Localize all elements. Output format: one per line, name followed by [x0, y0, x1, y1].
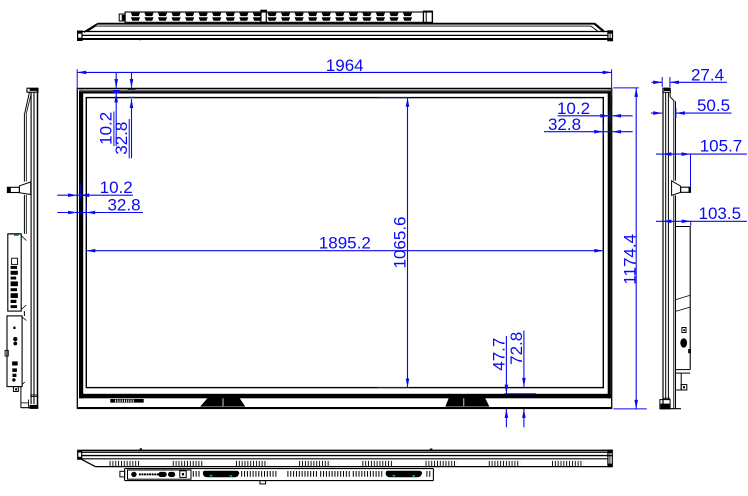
svg-text:32.8: 32.8	[107, 196, 140, 215]
svg-text:47.7: 47.7	[489, 338, 508, 371]
svg-text:72.8: 72.8	[507, 332, 526, 365]
svg-text:32.8: 32.8	[548, 115, 581, 134]
svg-text:27.4: 27.4	[691, 65, 724, 84]
svg-text:1065.6: 1065.6	[390, 217, 409, 269]
svg-text:1964: 1964	[326, 56, 364, 75]
svg-text:1174.4: 1174.4	[621, 234, 640, 285]
svg-text:50.5: 50.5	[697, 96, 730, 115]
svg-text:1895.2: 1895.2	[319, 234, 371, 253]
svg-text:105.7: 105.7	[700, 137, 743, 156]
svg-text:32.8: 32.8	[112, 122, 131, 155]
svg-text:10.2: 10.2	[100, 178, 133, 197]
svg-text:103.5: 103.5	[699, 204, 742, 223]
